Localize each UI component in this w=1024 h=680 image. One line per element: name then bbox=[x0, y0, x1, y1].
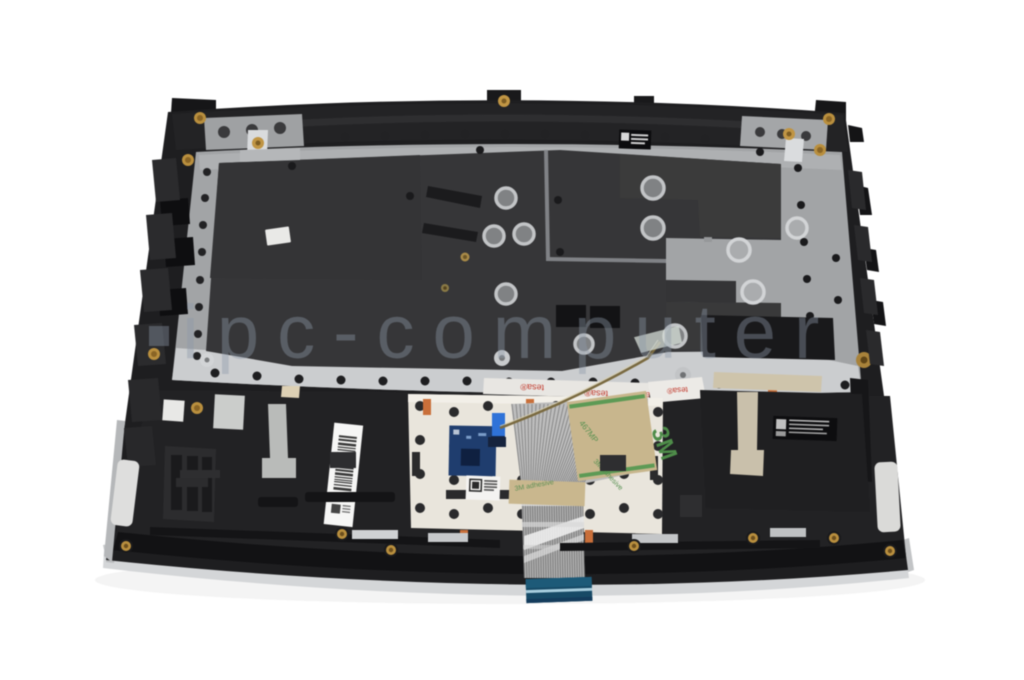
svg-text:tesa®: tesa® bbox=[520, 382, 544, 393]
svg-text:tesa®: tesa® bbox=[666, 385, 688, 395]
svg-text:ipc-computer: ipc-computer bbox=[182, 290, 837, 375]
